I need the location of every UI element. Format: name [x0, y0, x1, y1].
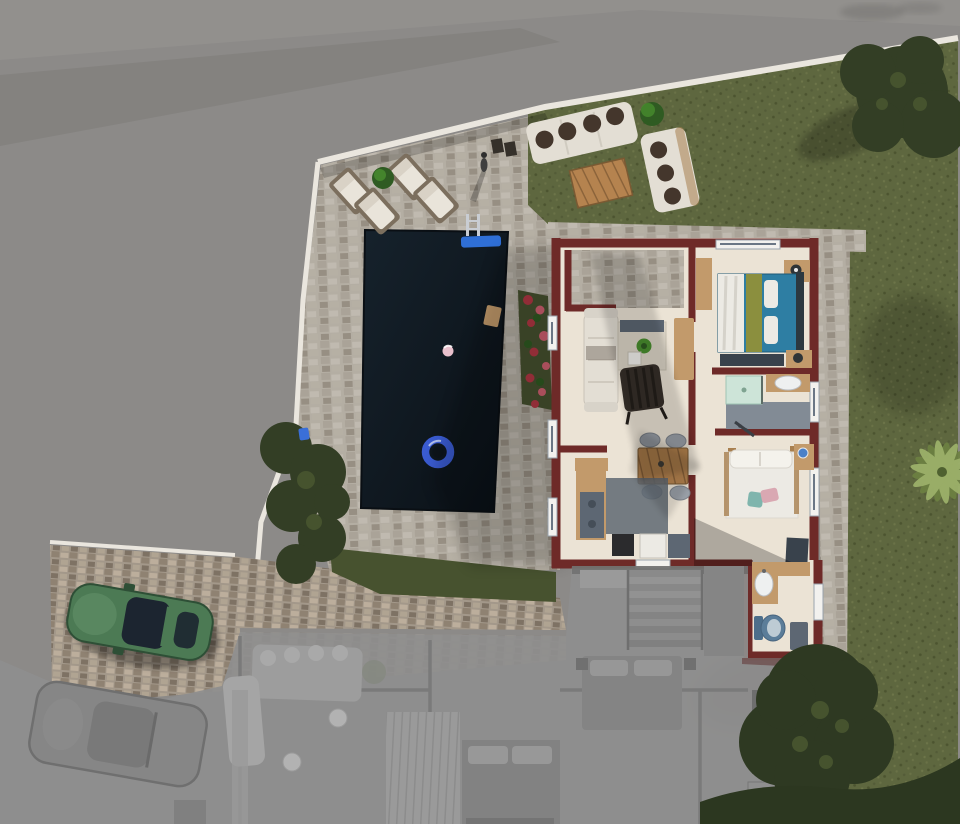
villa-aerial-render — [0, 0, 960, 824]
ghost-bed — [462, 740, 560, 824]
bathroom — [726, 374, 810, 436]
road-smudge — [840, 4, 904, 20]
tree-top-right — [840, 36, 960, 158]
bed-bench — [720, 354, 784, 366]
kitchen-island-white — [640, 534, 666, 558]
garden-plant — [640, 102, 664, 126]
ghost-wall-band — [232, 690, 248, 824]
ghost-plant — [362, 660, 386, 684]
ghost-side-table — [329, 709, 347, 727]
toilet — [754, 615, 785, 641]
sink — [775, 376, 801, 390]
patio-plant — [372, 167, 394, 189]
ghost-bed-2 — [576, 656, 696, 730]
ghost-block — [174, 800, 206, 824]
kitchen-counter-blue — [668, 534, 690, 558]
ghost-sofa — [251, 644, 363, 702]
palm-shadow — [862, 295, 960, 415]
site-plan-render — [0, 0, 960, 824]
wardrobe — [696, 258, 712, 310]
sideboard — [674, 318, 694, 380]
ghost-side-table — [283, 753, 301, 771]
pool-mat — [461, 235, 501, 247]
blue-bucket — [298, 427, 310, 440]
kitchen-island-dark — [612, 534, 634, 556]
bed-teal — [718, 272, 804, 354]
road-smudge — [898, 2, 942, 14]
ghost-rug — [386, 712, 460, 824]
kitchen-appliances — [580, 492, 604, 538]
annex-sink — [755, 572, 773, 596]
headboard — [796, 272, 804, 354]
bed-white — [724, 450, 799, 518]
